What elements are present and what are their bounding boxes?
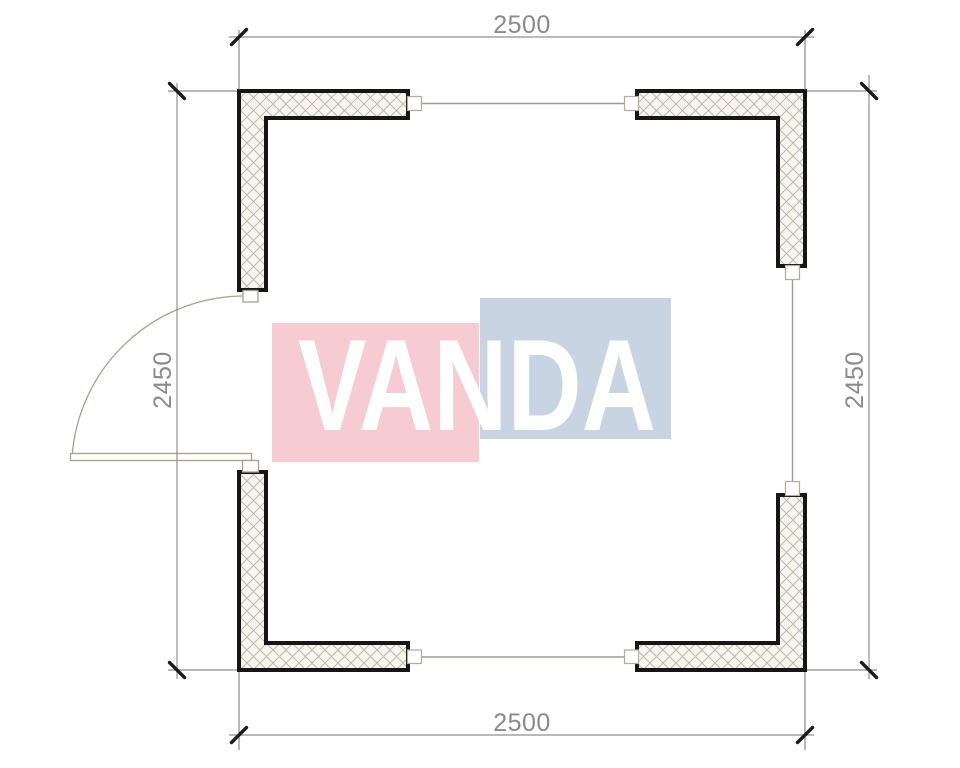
top-dimension-label: 2500 xyxy=(493,11,551,39)
watermark-brand-text: VANDA xyxy=(298,312,656,458)
bottom-dimension-label: 2500 xyxy=(493,709,551,737)
window-stub-right-upper xyxy=(786,266,800,280)
window-stub-top-right xyxy=(625,97,639,111)
window-stub-right-lower xyxy=(786,482,800,496)
door-stub-lower xyxy=(243,461,259,473)
wall-top-right xyxy=(637,91,805,266)
right-dimension-label: 2450 xyxy=(841,351,869,409)
door-stub-upper xyxy=(243,291,258,303)
floor-plan-svg: VANDA xyxy=(0,0,960,768)
window-stub-bottom-left xyxy=(408,650,422,664)
wall-bottom-right xyxy=(637,495,805,670)
left-dimension-label: 2450 xyxy=(149,351,177,409)
watermark: VANDA xyxy=(272,298,671,462)
wall-bottom-left xyxy=(239,472,408,670)
wall-top-left xyxy=(239,91,408,290)
window-stub-bottom-right xyxy=(625,650,639,664)
floor-plan-canvas: VANDA xyxy=(0,0,960,768)
door-leaf xyxy=(71,454,252,461)
window-stub-top-left xyxy=(408,97,422,111)
